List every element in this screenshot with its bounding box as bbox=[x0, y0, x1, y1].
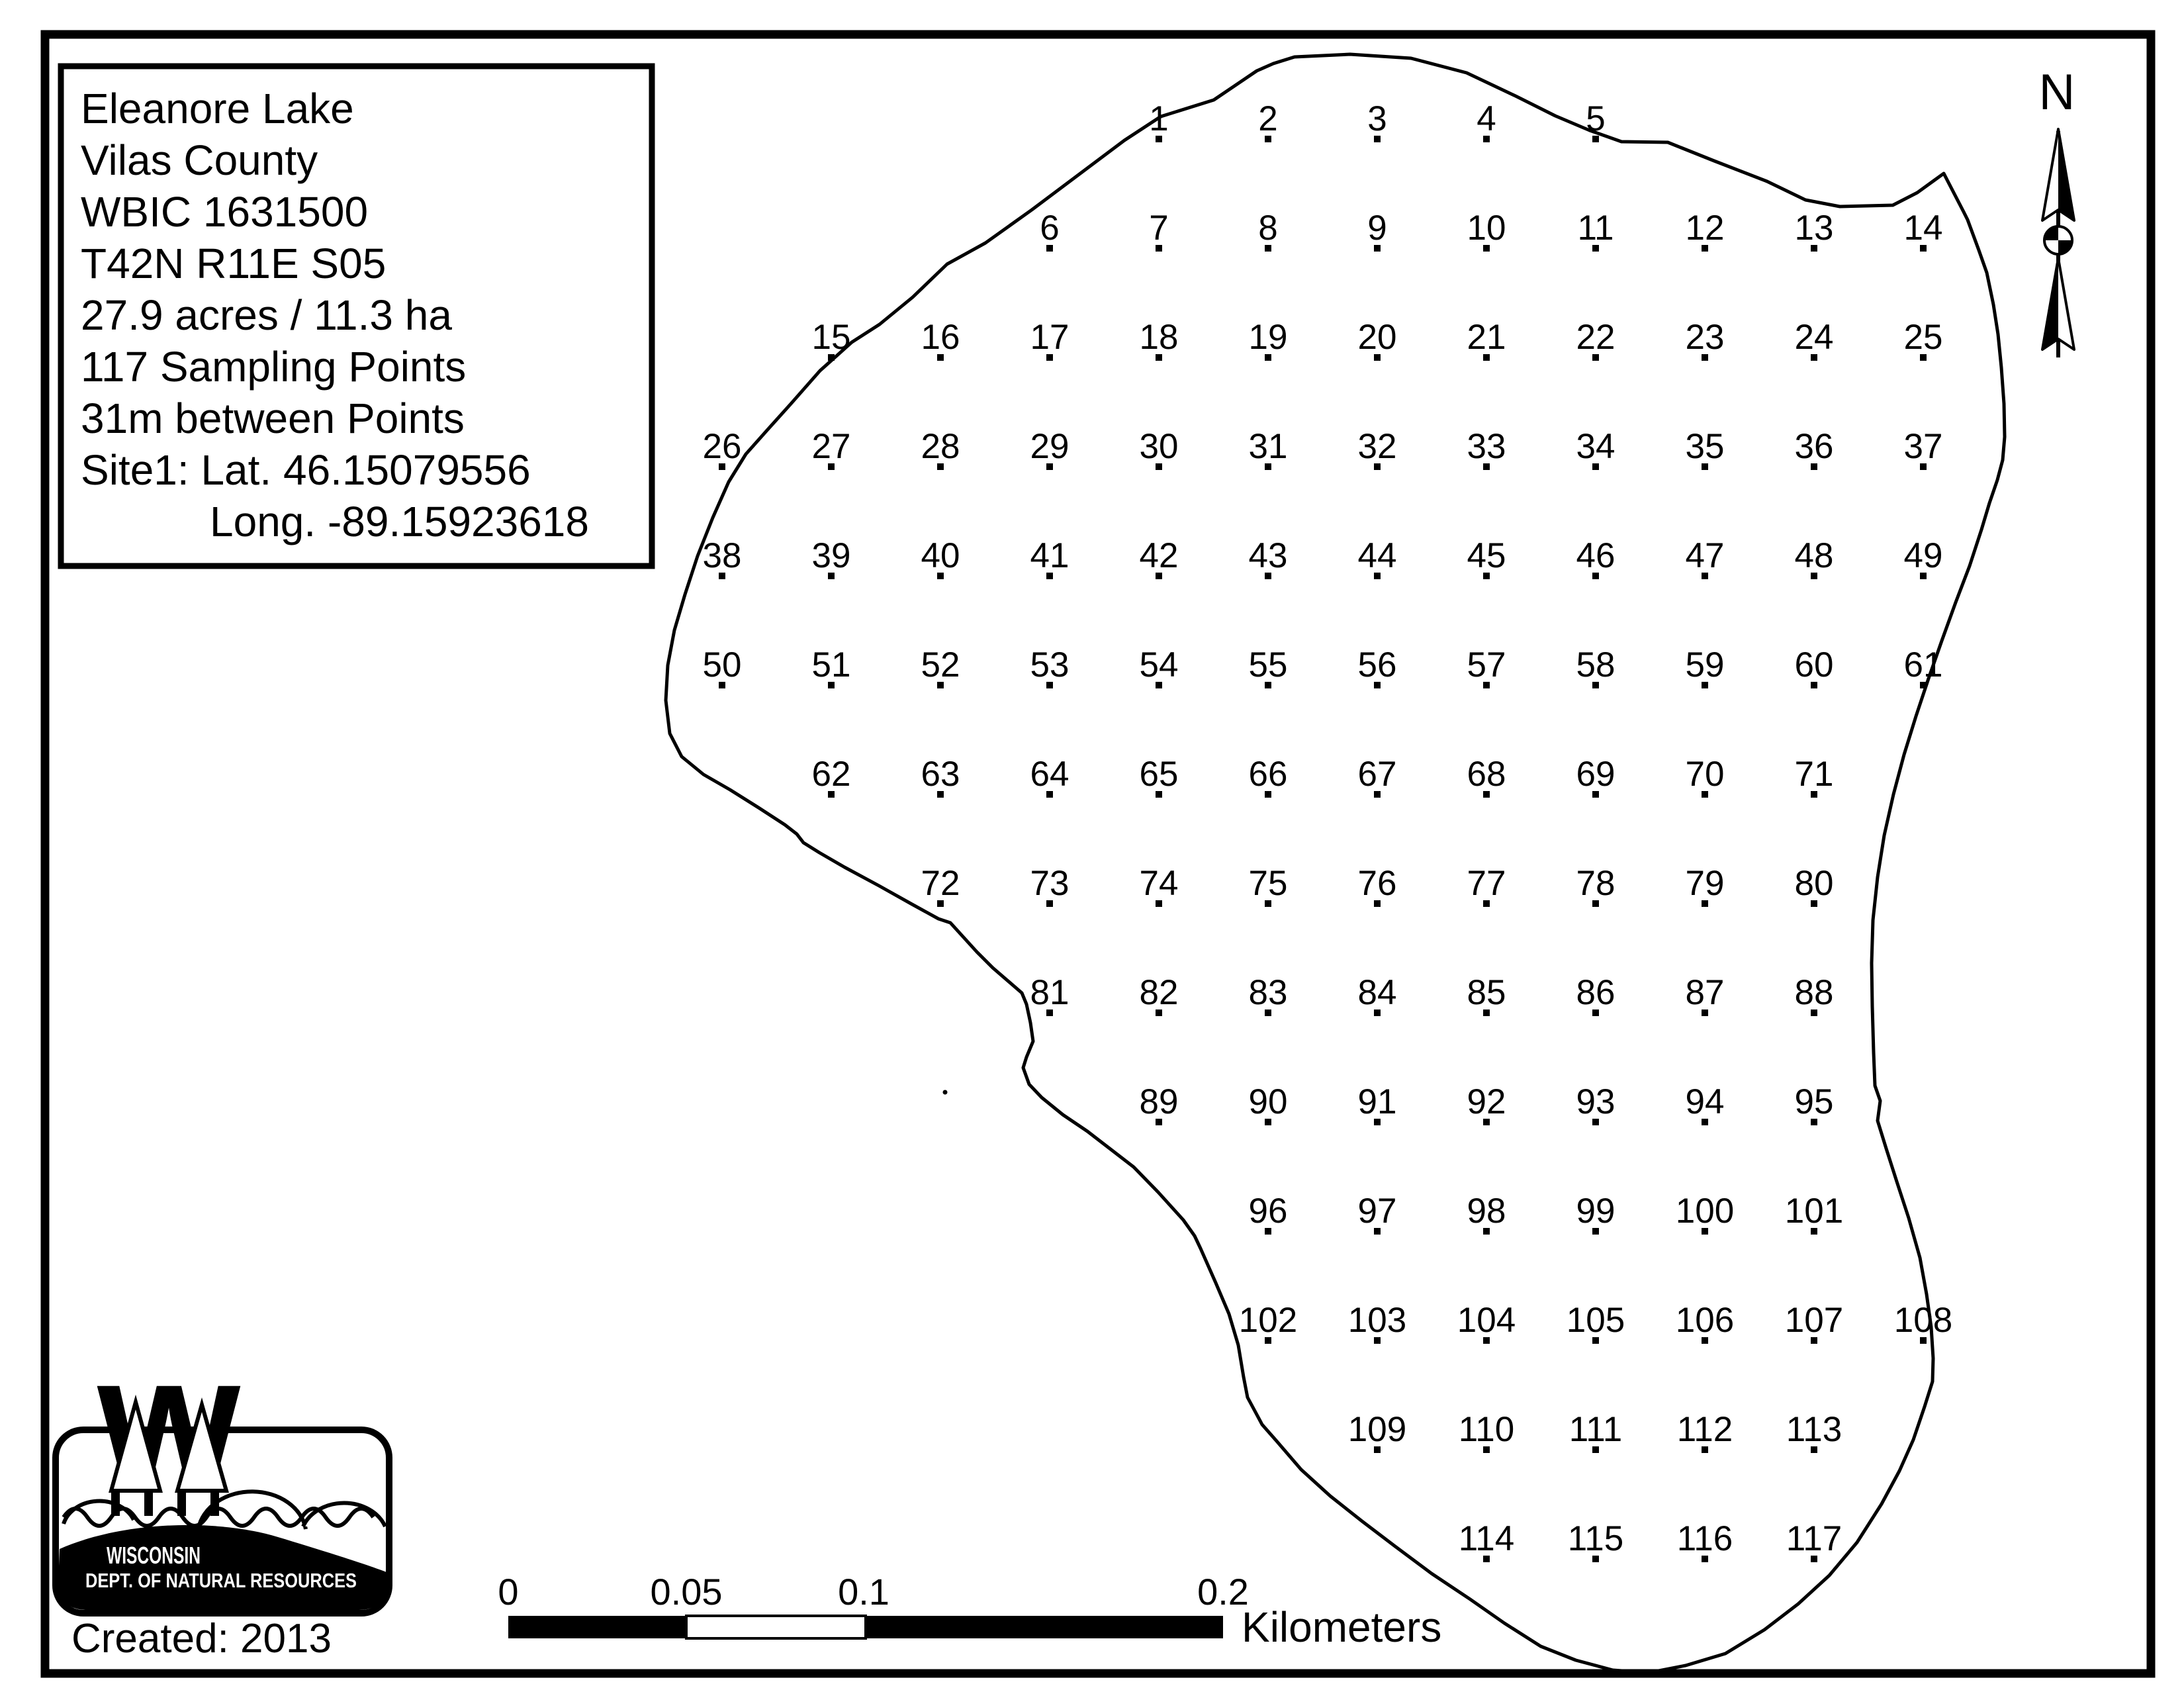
sampling-point-label: 99 bbox=[1576, 1192, 1615, 1231]
sampling-point-label: 89 bbox=[1140, 1082, 1179, 1121]
lake-map-canvas: 1234567891011121314151617181920212223242… bbox=[0, 0, 2184, 1688]
sampling-point-label: 88 bbox=[1795, 973, 1834, 1012]
sampling-point-label: 94 bbox=[1686, 1082, 1725, 1121]
sampling-point-label: 25 bbox=[1904, 318, 1943, 357]
sampling-point: 71 bbox=[1795, 755, 1834, 798]
sampling-point: 110 bbox=[1459, 1410, 1515, 1453]
sampling-point: 100 bbox=[1676, 1192, 1734, 1235]
sampling-point: 98 bbox=[1467, 1192, 1506, 1235]
sampling-point-label: 42 bbox=[1140, 536, 1179, 575]
sampling-point-label: 97 bbox=[1358, 1192, 1397, 1231]
sampling-point: 3 bbox=[1367, 99, 1387, 142]
islet-dot bbox=[943, 1090, 948, 1095]
sampling-point-label: 67 bbox=[1358, 755, 1397, 794]
sampling-point: 8 bbox=[1258, 209, 1277, 252]
sampling-point: 82 bbox=[1140, 973, 1179, 1016]
sampling-point: 17 bbox=[1030, 318, 1069, 361]
sampling-point-label: 43 bbox=[1249, 536, 1288, 575]
sampling-point: 80 bbox=[1795, 864, 1834, 907]
sampling-point-label: 37 bbox=[1904, 427, 1943, 466]
sampling-point: 85 bbox=[1467, 973, 1506, 1016]
sampling-point-label: 76 bbox=[1358, 864, 1397, 903]
sampling-point: 96 bbox=[1249, 1192, 1288, 1235]
sampling-point-label: 91 bbox=[1358, 1082, 1397, 1121]
sampling-point-label: 11 bbox=[1577, 209, 1614, 248]
sampling-point-label: 3 bbox=[1367, 99, 1387, 138]
sampling-point: 56 bbox=[1358, 645, 1397, 688]
sampling-point-label: 7 bbox=[1149, 209, 1168, 248]
sampling-point-label: 48 bbox=[1795, 536, 1834, 575]
sampling-point: 11 bbox=[1577, 209, 1614, 252]
sampling-point-label: 46 bbox=[1576, 536, 1615, 575]
north-arrow: N bbox=[2039, 64, 2075, 357]
sampling-point-label: 58 bbox=[1576, 645, 1615, 684]
sampling-point: 27 bbox=[812, 427, 851, 470]
info-box-line: Vilas County bbox=[81, 136, 318, 184]
sampling-point: 116 bbox=[1677, 1519, 1733, 1562]
sampling-point-label: 87 bbox=[1686, 973, 1725, 1012]
sampling-point-label: 107 bbox=[1785, 1301, 1843, 1340]
sampling-point: 22 bbox=[1576, 318, 1615, 361]
sampling-point: 6 bbox=[1040, 209, 1059, 252]
sampling-point: 107 bbox=[1785, 1301, 1843, 1344]
sampling-point: 109 bbox=[1348, 1410, 1406, 1453]
sampling-point-label: 93 bbox=[1576, 1082, 1615, 1121]
sampling-point: 79 bbox=[1686, 864, 1725, 907]
info-box-line: WBIC 1631500 bbox=[81, 188, 368, 236]
sampling-point-label: 114 bbox=[1459, 1519, 1515, 1558]
sampling-point-label: 36 bbox=[1795, 427, 1834, 466]
logo-line2: DEPT. OF NATURAL RESOURCES bbox=[85, 1569, 357, 1592]
sampling-point: 112 bbox=[1677, 1410, 1733, 1453]
logo-trunk-4 bbox=[210, 1491, 219, 1516]
sampling-point-label: 4 bbox=[1477, 99, 1496, 138]
sampling-point-label: 28 bbox=[921, 427, 960, 466]
sampling-point-label: 16 bbox=[921, 318, 960, 357]
sampling-point-label: 49 bbox=[1904, 536, 1943, 575]
sampling-point-label: 66 bbox=[1249, 755, 1288, 794]
sampling-point: 105 bbox=[1567, 1301, 1625, 1344]
sampling-point: 66 bbox=[1249, 755, 1288, 798]
sampling-point-label: 77 bbox=[1467, 864, 1506, 903]
sampling-point-label: 104 bbox=[1457, 1301, 1516, 1340]
sampling-point-label: 72 bbox=[921, 864, 960, 903]
sampling-point: 89 bbox=[1140, 1082, 1179, 1125]
sampling-point: 52 bbox=[921, 645, 960, 688]
sampling-point: 81 bbox=[1030, 973, 1069, 1016]
info-box-line: 27.9 acres / 11.3 ha bbox=[81, 291, 452, 339]
sampling-point-label: 56 bbox=[1358, 645, 1397, 684]
sampling-point: 76 bbox=[1358, 864, 1397, 907]
sampling-point: 60 bbox=[1795, 645, 1834, 688]
sampling-point-label: 8 bbox=[1258, 209, 1277, 248]
sampling-point: 34 bbox=[1576, 427, 1615, 470]
sampling-point: 37 bbox=[1904, 427, 1943, 470]
sampling-point-label: 98 bbox=[1467, 1192, 1506, 1231]
sampling-point: 45 bbox=[1467, 536, 1506, 579]
sampling-point: 12 bbox=[1686, 209, 1725, 252]
sampling-point-label: 31 bbox=[1249, 427, 1288, 466]
sampling-point: 67 bbox=[1358, 755, 1397, 798]
sampling-point-label: 18 bbox=[1140, 318, 1179, 357]
info-box-line: Eleanore Lake bbox=[81, 85, 354, 132]
sampling-point: 2 bbox=[1258, 99, 1277, 142]
sampling-point-label: 20 bbox=[1358, 318, 1397, 357]
sampling-point-label: 79 bbox=[1686, 864, 1725, 903]
sampling-point-label: 26 bbox=[703, 427, 742, 466]
sampling-point: 58 bbox=[1576, 645, 1615, 688]
sampling-point: 7 bbox=[1149, 209, 1168, 252]
sampling-point-label: 19 bbox=[1249, 318, 1288, 357]
sampling-point-label: 60 bbox=[1795, 645, 1834, 684]
sampling-point: 14 bbox=[1904, 209, 1943, 252]
sampling-point-label: 2 bbox=[1258, 99, 1277, 138]
sampling-point-label: 78 bbox=[1576, 864, 1615, 903]
sampling-point-label: 17 bbox=[1030, 318, 1069, 357]
sampling-point: 92 bbox=[1467, 1082, 1506, 1125]
sampling-point-label: 33 bbox=[1467, 427, 1506, 466]
sampling-point: 73 bbox=[1030, 864, 1069, 907]
sampling-point: 88 bbox=[1795, 973, 1834, 1016]
sampling-point: 35 bbox=[1686, 427, 1725, 470]
sampling-point-label: 62 bbox=[812, 755, 851, 794]
sampling-point: 61 bbox=[1904, 645, 1943, 688]
logo-trunk-2 bbox=[144, 1491, 153, 1516]
sampling-point: 40 bbox=[921, 536, 960, 579]
sampling-point: 106 bbox=[1676, 1301, 1734, 1344]
sampling-point-label: 9 bbox=[1367, 209, 1387, 248]
scale-tick-label: 0.05 bbox=[651, 1571, 723, 1613]
sampling-point-label: 35 bbox=[1686, 427, 1725, 466]
sampling-point: 46 bbox=[1576, 536, 1615, 579]
sampling-point: 62 bbox=[812, 755, 851, 798]
sampling-point-label: 102 bbox=[1239, 1301, 1297, 1340]
sampling-point: 87 bbox=[1686, 973, 1725, 1016]
sampling-point: 23 bbox=[1686, 318, 1725, 361]
sampling-point-label: 105 bbox=[1567, 1301, 1625, 1340]
sampling-point: 29 bbox=[1030, 427, 1069, 470]
sampling-point: 72 bbox=[921, 864, 960, 907]
sampling-point: 51 bbox=[812, 645, 851, 688]
sampling-point: 57 bbox=[1467, 645, 1506, 688]
sampling-point-label: 115 bbox=[1568, 1519, 1624, 1558]
sampling-point: 18 bbox=[1140, 318, 1179, 361]
sampling-point-label: 81 bbox=[1030, 973, 1069, 1012]
sampling-point: 26 bbox=[703, 427, 742, 470]
sampling-point-label: 73 bbox=[1030, 864, 1069, 903]
sampling-point-label: 50 bbox=[703, 645, 742, 684]
sampling-point: 99 bbox=[1576, 1192, 1615, 1235]
sampling-point-label: 57 bbox=[1467, 645, 1506, 684]
sampling-point: 30 bbox=[1140, 427, 1179, 470]
sampling-point-label: 108 bbox=[1894, 1301, 1952, 1340]
sampling-point-label: 6 bbox=[1040, 209, 1059, 248]
sampling-point: 32 bbox=[1358, 427, 1397, 470]
sampling-point: 50 bbox=[703, 645, 742, 688]
scale-unit-label: Kilometers bbox=[1242, 1603, 1441, 1651]
sampling-point-label: 63 bbox=[921, 755, 960, 794]
scale-tick-label: 0 bbox=[498, 1571, 518, 1613]
sampling-point: 70 bbox=[1686, 755, 1725, 798]
sampling-point-label: 106 bbox=[1676, 1301, 1734, 1340]
info-box: Eleanore LakeVilas CountyWBIC 1631500T42… bbox=[61, 66, 652, 566]
sampling-point-label: 112 bbox=[1677, 1410, 1733, 1449]
sampling-point-label: 39 bbox=[812, 536, 851, 575]
sampling-point: 10 bbox=[1467, 209, 1506, 252]
sampling-point: 101 bbox=[1785, 1192, 1843, 1235]
sampling-point: 13 bbox=[1795, 209, 1834, 252]
sampling-point: 59 bbox=[1686, 645, 1725, 688]
sampling-point: 15 bbox=[812, 318, 851, 361]
sampling-point: 86 bbox=[1576, 973, 1615, 1016]
sampling-point: 49 bbox=[1904, 536, 1943, 579]
sampling-point-label: 22 bbox=[1576, 318, 1615, 357]
sampling-point: 24 bbox=[1795, 318, 1834, 361]
sampling-point-label: 47 bbox=[1686, 536, 1725, 575]
sampling-point-label: 65 bbox=[1140, 755, 1179, 794]
scale-bar: 00.050.10.2 Kilometers bbox=[498, 1571, 1441, 1651]
sampling-point-label: 34 bbox=[1576, 427, 1615, 466]
sampling-point: 63 bbox=[921, 755, 960, 798]
sampling-point-label: 92 bbox=[1467, 1082, 1506, 1121]
sampling-point: 19 bbox=[1249, 318, 1288, 361]
info-box-line: 117 Sampling Points bbox=[81, 343, 466, 391]
sampling-point-label: 84 bbox=[1358, 973, 1397, 1012]
wisconsin-dnr-logo: W WISCONSIN DEPT. OF NATURAL RESOURCES bbox=[56, 1353, 389, 1613]
sampling-point: 28 bbox=[921, 427, 960, 470]
sampling-point-label: 23 bbox=[1686, 318, 1725, 357]
sampling-point: 39 bbox=[812, 536, 851, 579]
sampling-point: 53 bbox=[1030, 645, 1069, 688]
sampling-point-label: 68 bbox=[1467, 755, 1506, 794]
sampling-point: 68 bbox=[1467, 755, 1506, 798]
sampling-point-label: 55 bbox=[1249, 645, 1288, 684]
sampling-point: 38 bbox=[703, 536, 742, 579]
sampling-point: 93 bbox=[1576, 1082, 1615, 1125]
sampling-point-label: 75 bbox=[1249, 864, 1288, 903]
sampling-point: 43 bbox=[1249, 536, 1288, 579]
sampling-point: 114 bbox=[1459, 1519, 1515, 1562]
sampling-point: 55 bbox=[1249, 645, 1288, 688]
sampling-point-label: 90 bbox=[1249, 1082, 1288, 1121]
sampling-point-label: 44 bbox=[1358, 536, 1397, 575]
sampling-point: 108 bbox=[1894, 1301, 1952, 1344]
sampling-point: 36 bbox=[1795, 427, 1834, 470]
north-arrow-circle-se bbox=[2058, 240, 2072, 254]
sampling-point-label: 116 bbox=[1677, 1519, 1733, 1558]
sampling-point-label: 95 bbox=[1795, 1082, 1834, 1121]
sampling-point: 44 bbox=[1358, 536, 1397, 579]
sampling-point: 33 bbox=[1467, 427, 1506, 470]
sampling-point-label: 30 bbox=[1140, 427, 1179, 466]
sampling-point: 5 bbox=[1586, 99, 1605, 142]
sampling-point-label: 13 bbox=[1795, 209, 1834, 248]
sampling-point-label: 101 bbox=[1785, 1192, 1843, 1231]
sampling-point-label: 41 bbox=[1030, 536, 1069, 575]
sampling-point: 41 bbox=[1030, 536, 1069, 579]
sampling-point: 16 bbox=[921, 318, 960, 361]
sampling-point: 91 bbox=[1358, 1082, 1397, 1125]
sampling-point: 78 bbox=[1576, 864, 1615, 907]
sampling-point: 20 bbox=[1358, 318, 1397, 361]
sampling-point: 64 bbox=[1030, 755, 1069, 798]
sampling-point-label: 111 bbox=[1569, 1410, 1623, 1449]
sampling-point-label: 69 bbox=[1576, 755, 1615, 794]
sampling-point: 31 bbox=[1249, 427, 1288, 470]
logo-trunk-3 bbox=[177, 1491, 186, 1516]
sampling-point-label: 12 bbox=[1686, 209, 1725, 248]
sampling-point-label: 110 bbox=[1459, 1410, 1515, 1449]
scale-tick-label: 0.1 bbox=[838, 1571, 889, 1613]
sampling-point-label: 45 bbox=[1467, 536, 1506, 575]
scale-bar-seg-black-1 bbox=[508, 1616, 686, 1638]
sampling-point-label: 29 bbox=[1030, 427, 1069, 466]
sampling-point-label: 113 bbox=[1786, 1410, 1843, 1449]
sampling-point-label: 15 bbox=[812, 318, 851, 357]
sampling-point: 21 bbox=[1467, 318, 1506, 361]
sampling-point-label: 38 bbox=[703, 536, 742, 575]
sampling-point-label: 14 bbox=[1904, 209, 1943, 248]
sampling-point: 4 bbox=[1477, 99, 1496, 142]
sampling-point-label: 64 bbox=[1030, 755, 1069, 794]
sampling-point: 90 bbox=[1249, 1082, 1288, 1125]
sampling-point-label: 53 bbox=[1030, 645, 1069, 684]
sampling-point-label: 32 bbox=[1358, 427, 1397, 466]
sampling-point-label: 24 bbox=[1795, 318, 1834, 357]
sampling-point: 54 bbox=[1140, 645, 1179, 688]
sampling-point-label: 1 bbox=[1149, 99, 1168, 138]
sampling-point-label: 27 bbox=[812, 427, 851, 466]
sampling-point-label: 100 bbox=[1676, 1192, 1734, 1231]
sampling-point: 25 bbox=[1904, 318, 1943, 361]
sampling-point-label: 51 bbox=[812, 645, 851, 684]
scale-tick-labels: 00.050.10.2 bbox=[498, 1571, 1249, 1613]
sampling-point-label: 117 bbox=[1786, 1519, 1843, 1558]
sampling-point: 77 bbox=[1467, 864, 1506, 907]
scale-bar-seg-white bbox=[686, 1616, 866, 1638]
sampling-point: 97 bbox=[1358, 1192, 1397, 1235]
sampling-point-label: 40 bbox=[921, 536, 960, 575]
sampling-point: 75 bbox=[1249, 864, 1288, 907]
sampling-point: 94 bbox=[1686, 1082, 1725, 1125]
sampling-point-label: 80 bbox=[1795, 864, 1834, 903]
logo-trunk-1 bbox=[111, 1491, 120, 1516]
sampling-point-label: 83 bbox=[1249, 973, 1288, 1012]
info-box-line: Long. -89.15923618 bbox=[210, 498, 589, 545]
sampling-point-label: 85 bbox=[1467, 973, 1506, 1012]
sampling-point-label: 86 bbox=[1576, 973, 1615, 1012]
sampling-point: 117 bbox=[1786, 1519, 1843, 1562]
sampling-points-layer: 1234567891011121314151617181920212223242… bbox=[703, 99, 1953, 1562]
sampling-point: 47 bbox=[1686, 536, 1725, 579]
sampling-point-label: 82 bbox=[1140, 973, 1179, 1012]
sampling-point: 74 bbox=[1140, 864, 1179, 907]
sampling-point: 102 bbox=[1239, 1301, 1297, 1344]
sampling-point: 83 bbox=[1249, 973, 1288, 1016]
sampling-point: 1 bbox=[1149, 99, 1168, 142]
sampling-point-label: 10 bbox=[1467, 209, 1506, 248]
sampling-point: 42 bbox=[1140, 536, 1179, 579]
north-label: N bbox=[2039, 64, 2075, 120]
sampling-point-label: 21 bbox=[1467, 318, 1506, 357]
sampling-point-label: 54 bbox=[1140, 645, 1179, 684]
sampling-point-label: 70 bbox=[1686, 755, 1725, 794]
sampling-point-label: 74 bbox=[1140, 864, 1179, 903]
sampling-point-label: 103 bbox=[1348, 1301, 1406, 1340]
sampling-point: 9 bbox=[1367, 209, 1387, 252]
info-box-line: 31m between Points bbox=[81, 395, 465, 442]
sampling-point-label: 52 bbox=[921, 645, 960, 684]
sampling-point-label: 96 bbox=[1249, 1192, 1288, 1231]
created-note: Created: 2013 bbox=[71, 1616, 332, 1662]
sampling-point: 103 bbox=[1348, 1301, 1406, 1344]
sampling-point-label: 109 bbox=[1348, 1410, 1406, 1449]
sampling-point: 104 bbox=[1457, 1301, 1516, 1344]
info-box-line: T42N R11E S05 bbox=[81, 240, 386, 287]
sampling-point: 65 bbox=[1140, 755, 1179, 798]
sampling-point-label: 71 bbox=[1795, 755, 1834, 794]
sampling-point-label: 59 bbox=[1686, 645, 1725, 684]
sampling-point: 69 bbox=[1576, 755, 1615, 798]
sampling-point: 111 bbox=[1569, 1410, 1623, 1453]
sampling-point: 95 bbox=[1795, 1082, 1834, 1125]
sampling-point: 84 bbox=[1358, 973, 1397, 1016]
sampling-point-label: 5 bbox=[1586, 99, 1605, 138]
sampling-point: 48 bbox=[1795, 536, 1834, 579]
info-box-line: Site1: Lat. 46.15079556 bbox=[81, 446, 531, 494]
logo-line1: WISCONSIN bbox=[107, 1542, 201, 1569]
sampling-point: 113 bbox=[1786, 1410, 1843, 1453]
sampling-point: 115 bbox=[1568, 1519, 1624, 1562]
north-arrow-circle-nw bbox=[2044, 226, 2058, 240]
sampling-point-label: 61 bbox=[1904, 645, 1943, 684]
scale-bar-seg-black-2 bbox=[866, 1616, 1223, 1638]
